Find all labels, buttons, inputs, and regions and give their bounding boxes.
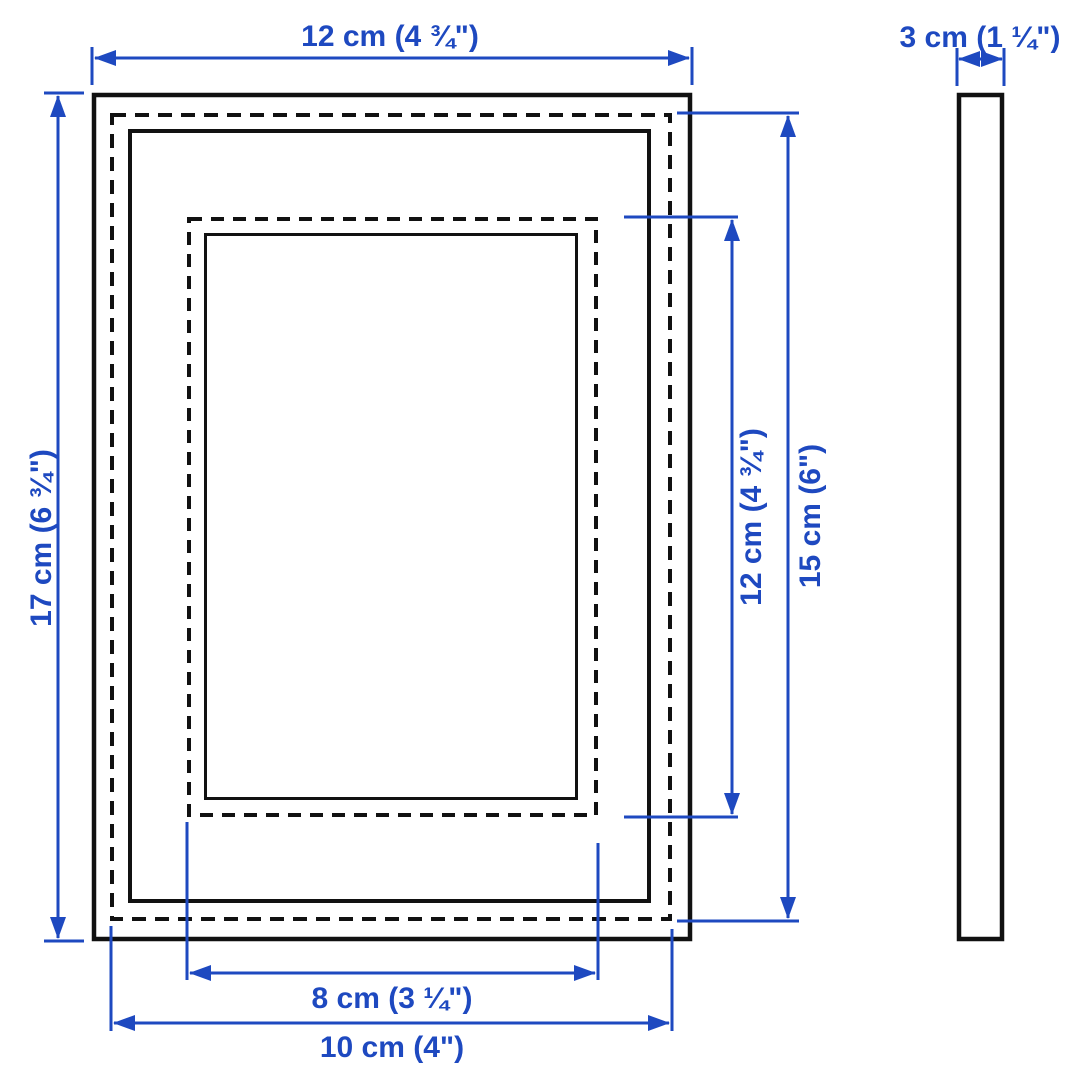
dim-frame-width: 12 cm (4 ¾") [92,20,692,85]
dim-frame-depth: 3 cm (1 ¼") [900,21,1061,86]
dimension-label: 15 cm (6") [794,444,827,588]
picture-visible-opening [206,235,577,799]
frame-outer-edge [94,95,690,939]
dim-frame-height: 17 cm (6 ¾") [25,93,84,941]
dimension-label: 12 cm (4 ¾") [735,428,768,606]
dimension-label: 10 cm (4") [320,1031,464,1064]
dimension-label: 8 cm (3 ¼") [312,982,473,1015]
dimension-label: 3 cm (1 ¼") [900,21,1061,54]
frame-dimension-diagram: 12 cm (4 ¾") 3 cm (1 ¼") 17 cm (6 ¾") 12… [0,0,1080,1080]
front-view [94,95,690,939]
dim-visible-picture-height: 12 cm (4 ¾") [624,217,768,817]
side-view [959,95,1002,939]
diagram-canvas: 12 cm (4 ¾") 3 cm (1 ¼") 17 cm (6 ¾") 12… [0,0,1080,1080]
picture-size-dashed-outline [189,219,596,815]
dimension-label: 12 cm (4 ¾") [301,20,479,53]
frame-inner-border [130,131,649,901]
dimension-label: 17 cm (6 ¾") [25,449,58,627]
frame-side-profile [959,95,1002,939]
